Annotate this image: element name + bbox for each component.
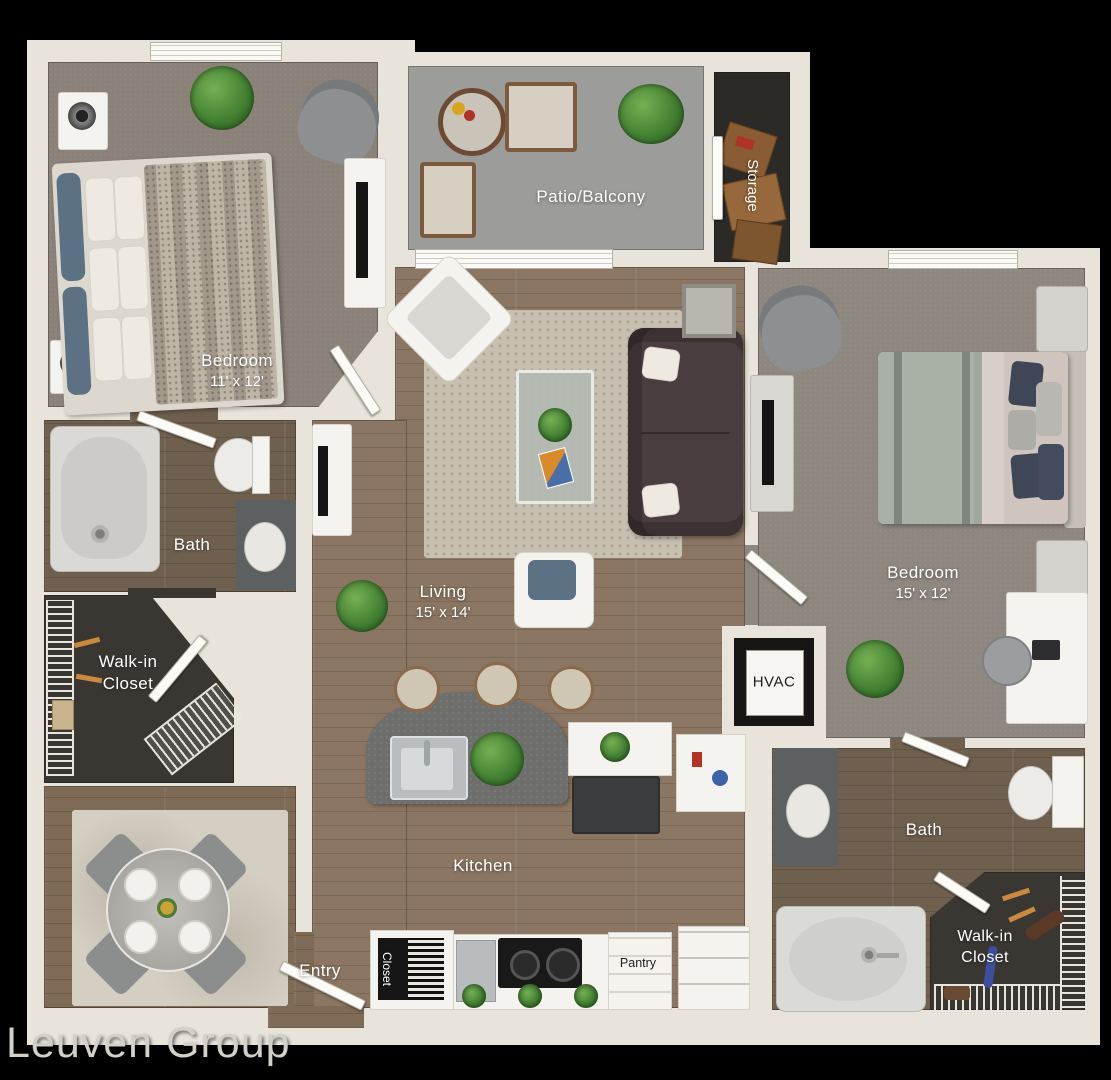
- counter-plant: [462, 984, 486, 1008]
- floor-plan: Bedroom 11' x 12' Patio/Balcony Storage …: [0, 0, 1111, 1080]
- patio-chair: [420, 162, 476, 238]
- table-plant: [538, 408, 572, 442]
- vanity-sink: [244, 522, 286, 572]
- navy-pillow: [1038, 444, 1064, 500]
- floor-plant: [846, 640, 904, 698]
- room-name: Bedroom: [201, 350, 273, 372]
- patio-chair: [505, 82, 577, 152]
- counter-plant: [574, 984, 598, 1008]
- bed: [878, 352, 1068, 524]
- fruit-bowl: [464, 110, 475, 121]
- patio-label: Patio/Balcony: [536, 186, 645, 208]
- toilet-tank: [1052, 756, 1084, 828]
- room-name: Storage: [743, 159, 760, 212]
- tub-drain: [861, 947, 877, 963]
- counter-plant: [600, 732, 630, 762]
- wire-shelving: [1060, 876, 1088, 1008]
- sheet-fold: [982, 352, 1004, 524]
- pillow: [92, 317, 124, 382]
- centerpiece: [157, 898, 177, 918]
- sofa-pillow: [641, 346, 681, 383]
- pillow: [88, 247, 120, 312]
- blanket-band: [894, 352, 902, 524]
- watermark: Leuven Group: [6, 1019, 291, 1068]
- room-dims: 15' x 14': [416, 603, 471, 623]
- walkin-right-label: Walk-in Closet: [957, 927, 1013, 969]
- cabinet: [678, 926, 750, 1010]
- fruit-bowl: [452, 102, 465, 115]
- blue-cushion: [528, 560, 576, 600]
- room-name: Walk-in: [957, 927, 1013, 948]
- bath-left-label: Bath: [174, 534, 211, 556]
- pillow: [121, 315, 153, 380]
- detergent-bottle: [692, 752, 702, 767]
- sofa-seam: [642, 432, 730, 434]
- place-setting: [124, 868, 158, 902]
- refrigerator: [572, 776, 660, 834]
- desk-chair: [982, 636, 1032, 686]
- place-setting: [124, 920, 158, 954]
- tv: [356, 182, 368, 278]
- bar-stool: [548, 666, 594, 712]
- room-name: Closet: [99, 673, 158, 695]
- tub-drain: [91, 525, 109, 543]
- louver-doors: [408, 938, 444, 1000]
- table-lamp: [68, 102, 96, 130]
- walkin-left-label: Walk-in Closet: [99, 651, 158, 695]
- bedroom-right-label: Bedroom 15' x 12': [887, 562, 959, 604]
- faucet: [424, 740, 430, 766]
- room-dims: 15' x 12': [887, 584, 959, 604]
- pillow: [117, 245, 149, 310]
- room-name: Bedroom: [887, 562, 959, 584]
- storage-label: Storage: [714, 120, 790, 250]
- room-name: Closet: [380, 952, 394, 986]
- kitchen-label: Kitchen: [453, 855, 513, 877]
- pantry-label: Pantry: [620, 955, 656, 971]
- floor-plant: [336, 580, 388, 632]
- walkin-left-doorway: [128, 588, 216, 598]
- tv: [762, 400, 774, 485]
- faucet: [877, 953, 899, 958]
- blue-pillow: [56, 172, 86, 281]
- pillow: [84, 177, 116, 242]
- bowl: [712, 770, 728, 786]
- wire-shelving: [46, 600, 74, 776]
- bath-right-label: Bath: [906, 819, 943, 841]
- toilet-tank: [252, 436, 270, 494]
- room-name: Walk-in: [99, 651, 158, 673]
- place-setting: [178, 920, 212, 954]
- kitchen-sink: [390, 736, 468, 800]
- island-plant: [470, 732, 524, 786]
- patio-plant: [618, 84, 684, 144]
- room-name: Closet: [957, 948, 1013, 969]
- laptop: [1032, 640, 1060, 660]
- burner: [510, 950, 540, 980]
- gray-pillow: [1036, 382, 1062, 436]
- bar-stool: [474, 662, 520, 708]
- toilet-bowl: [1008, 766, 1054, 820]
- room-name: Living: [416, 581, 471, 603]
- shoes: [944, 986, 970, 1000]
- place-setting: [178, 868, 212, 902]
- stove: [498, 938, 582, 988]
- tv: [318, 446, 328, 516]
- vanity-sink: [786, 784, 830, 838]
- room-dims: 11' x 12': [201, 372, 273, 392]
- end-table: [682, 284, 736, 338]
- bar-stool: [394, 666, 440, 712]
- bathtub: [776, 906, 926, 1012]
- sofa-pillow: [641, 482, 681, 518]
- patio-table: [438, 88, 506, 156]
- entry-closet-label: Closet: [372, 934, 402, 1004]
- nightstand: [1036, 286, 1088, 352]
- bedroom-right-window: [888, 250, 1018, 269]
- chair-cushion: [405, 274, 493, 362]
- burner: [546, 948, 580, 982]
- tub-basin: [789, 917, 907, 1001]
- blue-pillow: [62, 286, 92, 395]
- potted-plant: [190, 66, 254, 130]
- living-label: Living 15' x 14': [416, 581, 471, 623]
- hvac-label: HVAC: [753, 672, 796, 692]
- laundry-counter: [676, 734, 746, 812]
- bedroom-left-window: [150, 42, 282, 61]
- blanket-band: [962, 352, 970, 524]
- storage-basket: [52, 700, 74, 730]
- entry-label: Entry: [299, 960, 341, 982]
- bedroom-left-label: Bedroom 11' x 12': [201, 350, 273, 392]
- counter-plant: [518, 984, 542, 1008]
- pillow: [113, 175, 145, 240]
- bathtub: [50, 426, 160, 572]
- gray-pillow: [1008, 410, 1036, 450]
